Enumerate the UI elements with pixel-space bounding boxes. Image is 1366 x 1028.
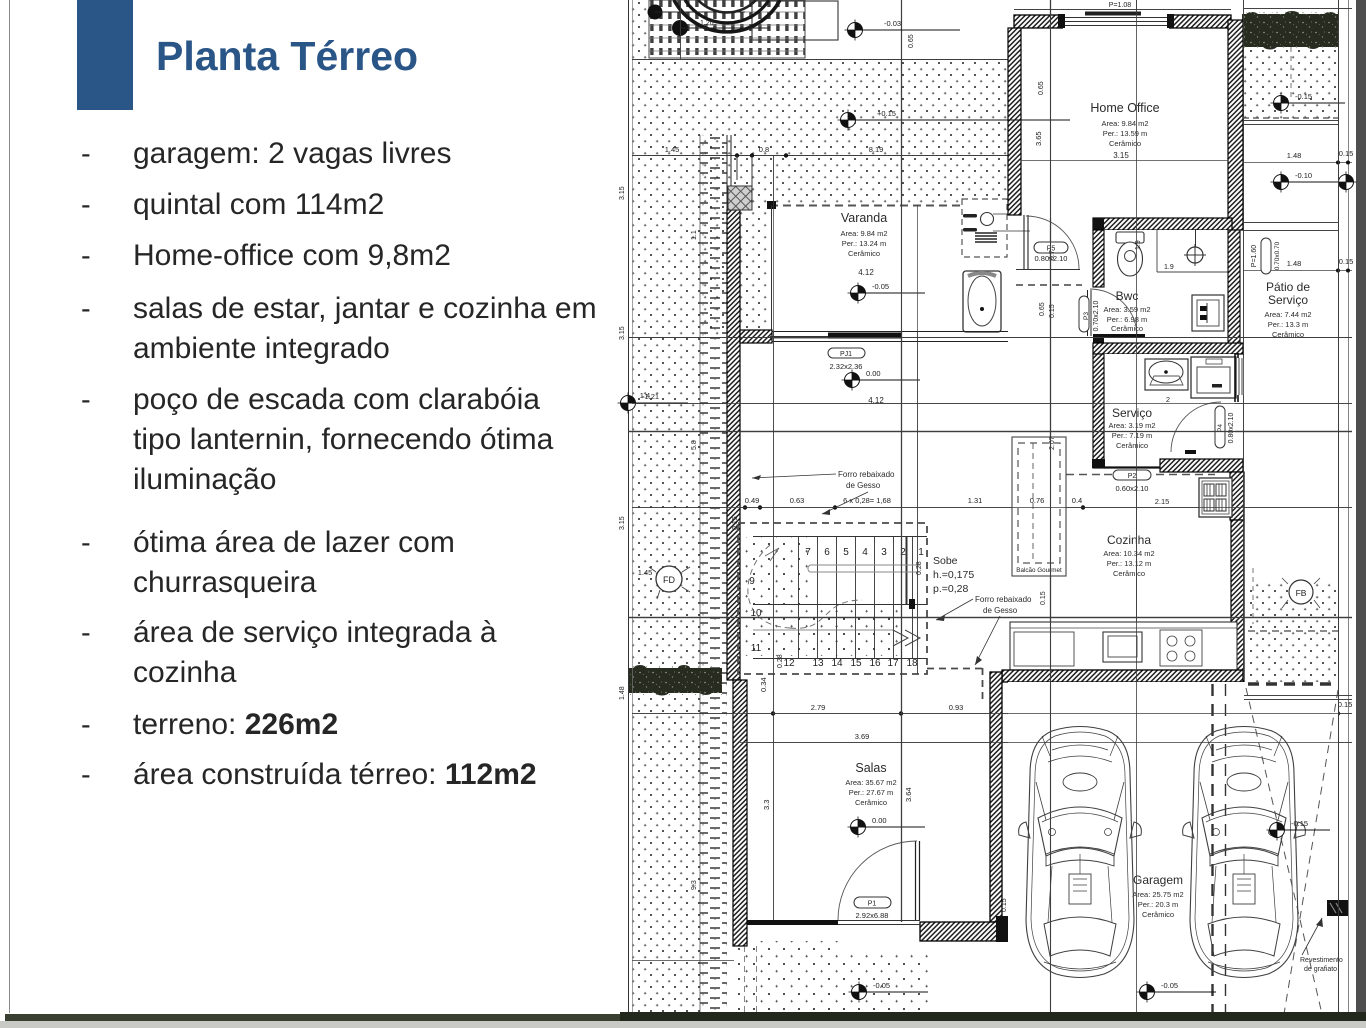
svg-text:2.79: 2.79 bbox=[811, 703, 826, 712]
svg-text:4.12: 4.12 bbox=[858, 268, 874, 277]
svg-text:1.9: 1.9 bbox=[1164, 264, 1174, 271]
svg-text:2: 2 bbox=[1166, 395, 1170, 404]
svg-text:1.20: 1.20 bbox=[700, 20, 714, 27]
svg-text:2.15: 2.15 bbox=[1155, 497, 1170, 506]
svg-text:Varanda: Varanda bbox=[841, 211, 887, 225]
svg-text:P=1.60: P=1.60 bbox=[1251, 245, 1258, 267]
svg-text:Serviço: Serviço bbox=[1268, 293, 1308, 307]
svg-text:9: 9 bbox=[749, 576, 755, 587]
svg-text:15: 15 bbox=[850, 658, 862, 669]
svg-text:Area: 7.44 m2: Area: 7.44 m2 bbox=[1264, 310, 1311, 319]
svg-text:0.65: 0.65 bbox=[908, 34, 915, 48]
svg-text:FB: FB bbox=[1296, 588, 1307, 598]
svg-text:0.49: 0.49 bbox=[745, 496, 760, 505]
svg-text:3.15: 3.15 bbox=[619, 516, 626, 530]
svg-text:0.15: 0.15 bbox=[1040, 591, 1047, 605]
svg-text:PJ1: PJ1 bbox=[840, 351, 852, 358]
svg-text:0.4: 0.4 bbox=[1072, 496, 1082, 505]
svg-text:Cerâmico: Cerâmico bbox=[1111, 324, 1143, 333]
svg-text:3.65: 3.65 bbox=[1034, 131, 1043, 146]
svg-text:6: 6 bbox=[824, 547, 830, 558]
svg-text:FD: FD bbox=[663, 575, 675, 585]
svg-text:-0.15: -0.15 bbox=[1291, 819, 1308, 828]
svg-text:Serviço: Serviço bbox=[1112, 406, 1152, 420]
svg-text:-0.10: -0.10 bbox=[1295, 171, 1312, 180]
svg-text:Cozinha: Cozinha bbox=[1107, 533, 1151, 547]
svg-text:5: 5 bbox=[843, 547, 849, 558]
svg-text:-1.21: -1.21 bbox=[642, 392, 659, 401]
svg-text:-0.05: -0.05 bbox=[873, 981, 890, 990]
svg-text:Cerâmico: Cerâmico bbox=[848, 249, 880, 258]
svg-text:-0.05: -0.05 bbox=[1161, 981, 1178, 990]
svg-text:de Gesso: de Gesso bbox=[983, 606, 1018, 615]
svg-text:Forro rebaixado: Forro rebaixado bbox=[975, 595, 1032, 604]
svg-text:6 x 0,28= 1,68: 6 x 0,28= 1,68 bbox=[843, 496, 891, 505]
svg-text:0.15: 0.15 bbox=[1339, 149, 1354, 158]
svg-text:Balcão Gourmet: Balcão Gourmet bbox=[1016, 567, 1062, 574]
svg-text:16: 16 bbox=[869, 658, 881, 669]
svg-text:Area: 25.75 m2: Area: 25.75 m2 bbox=[1132, 890, 1183, 899]
svg-text:-0.15: -0.15 bbox=[1295, 92, 1312, 101]
svg-text:Per.: 13.12 m: Per.: 13.12 m bbox=[1107, 559, 1152, 568]
svg-text:0.70x2.10: 0.70x2.10 bbox=[1093, 301, 1100, 332]
svg-text:0.34: 0.34 bbox=[759, 677, 768, 692]
svg-text:0.80x2.10: 0.80x2.10 bbox=[1228, 413, 1235, 444]
svg-text:0.93: 0.93 bbox=[949, 703, 964, 712]
svg-text:5.8: 5.8 bbox=[691, 440, 698, 450]
svg-text:14: 14 bbox=[831, 658, 843, 669]
svg-text:Per.: 13.59 m: Per.: 13.59 m bbox=[1103, 129, 1148, 138]
svg-text:Revestimento: Revestimento bbox=[1300, 957, 1343, 964]
svg-text:3.64: 3.64 bbox=[904, 787, 913, 802]
svg-text:0.28: 0.28 bbox=[777, 654, 784, 668]
svg-text:1: 1 bbox=[918, 547, 924, 558]
svg-text:Area: 35.67 m2: Area: 35.67 m2 bbox=[845, 778, 896, 787]
svg-text:P1: P1 bbox=[868, 901, 877, 908]
svg-text:Area: 3.59 m2: Area: 3.59 m2 bbox=[1103, 305, 1150, 314]
svg-text:p.=0,28: p.=0,28 bbox=[933, 583, 968, 595]
svg-text:-0.05: -0.05 bbox=[872, 282, 889, 291]
svg-text:2.92x6.88: 2.92x6.88 bbox=[856, 911, 889, 920]
svg-text:Area: 10.34 m2: Area: 10.34 m2 bbox=[1103, 549, 1154, 558]
svg-text:17: 17 bbox=[887, 658, 899, 669]
svg-text:0.65: 0.65 bbox=[1039, 302, 1046, 316]
svg-text:Bwc: Bwc bbox=[1116, 289, 1139, 303]
svg-text:P2: P2 bbox=[1128, 473, 1137, 480]
svg-text:Cerâmico: Cerâmico bbox=[1116, 441, 1148, 450]
svg-text:h.=0,175: h.=0,175 bbox=[933, 569, 974, 581]
svg-text:-0.03: -0.03 bbox=[884, 19, 901, 28]
svg-text:Cerâmico: Cerâmico bbox=[1142, 910, 1174, 919]
svg-text:9.3: 9.3 bbox=[691, 880, 698, 890]
svg-text:12: 12 bbox=[783, 658, 795, 669]
svg-text:Cerâmico: Cerâmico bbox=[855, 798, 887, 807]
svg-text:Pátio de: Pátio de bbox=[1266, 280, 1310, 294]
svg-text:11: 11 bbox=[751, 643, 762, 654]
svg-text:0.00: 0.00 bbox=[872, 816, 887, 825]
svg-text:Cerâmico: Cerâmico bbox=[1113, 569, 1145, 578]
svg-text:Per.: 6.98 m: Per.: 6.98 m bbox=[1107, 315, 1147, 324]
svg-text:3.3: 3.3 bbox=[762, 800, 771, 810]
svg-text:3.15: 3.15 bbox=[619, 326, 626, 340]
svg-text:3.15: 3.15 bbox=[1113, 151, 1129, 160]
svg-text:0.60x2.10: 0.60x2.10 bbox=[1116, 484, 1149, 493]
svg-text:7: 7 bbox=[805, 547, 811, 558]
svg-text:0.15: 0.15 bbox=[1338, 700, 1353, 709]
svg-text:Sobe: Sobe bbox=[933, 555, 958, 567]
svg-text:0.15: 0.15 bbox=[732, 516, 739, 530]
svg-text:Per.: 20.3 m: Per.: 20.3 m bbox=[1138, 900, 1178, 909]
svg-text:de grafiato: de grafiato bbox=[1304, 966, 1337, 973]
svg-text:P=1.08: P=1.08 bbox=[1109, 2, 1131, 9]
svg-text:Area: 9.84 m2: Area: 9.84 m2 bbox=[1101, 119, 1148, 128]
svg-text:Home Office: Home Office bbox=[1090, 101, 1159, 115]
svg-text:13: 13 bbox=[812, 658, 824, 669]
svg-text:4: 4 bbox=[862, 547, 868, 558]
svg-text:1.48: 1.48 bbox=[1287, 259, 1302, 268]
svg-text:18: 18 bbox=[906, 658, 918, 669]
svg-text:Area: 9.84 m2: Area: 9.84 m2 bbox=[840, 229, 887, 238]
svg-text:0.65: 0.65 bbox=[1038, 81, 1045, 95]
svg-text:3: 3 bbox=[881, 547, 887, 558]
svg-text:1.1: 1.1 bbox=[691, 230, 698, 240]
svg-text:3.69: 3.69 bbox=[855, 732, 870, 741]
svg-text:P4: P4 bbox=[1217, 424, 1224, 432]
svg-text:Per.: 13.3 m: Per.: 13.3 m bbox=[1268, 320, 1308, 329]
svg-text:0.63: 0.63 bbox=[790, 496, 805, 505]
svg-text:0.8: 0.8 bbox=[759, 145, 769, 154]
svg-text:1.9: 1.9 bbox=[1135, 240, 1142, 250]
svg-text:1.48: 1.48 bbox=[1287, 151, 1302, 160]
svg-text:Forro rebaixado: Forro rebaixado bbox=[838, 470, 895, 479]
svg-text:1.45: 1.45 bbox=[638, 568, 653, 577]
svg-text:2.32x2.36: 2.32x2.36 bbox=[830, 362, 863, 371]
svg-text:0.15: 0.15 bbox=[1339, 257, 1354, 266]
svg-text:0.00: 0.00 bbox=[866, 369, 881, 378]
svg-text:de Gesso: de Gesso bbox=[846, 481, 881, 490]
svg-text:0.70x0.70: 0.70x0.70 bbox=[1274, 241, 1281, 270]
svg-text:1.31: 1.31 bbox=[968, 496, 983, 505]
svg-text:Salas: Salas bbox=[855, 761, 886, 775]
svg-text:Garagem: Garagem bbox=[1133, 873, 1183, 887]
svg-text:3.15: 3.15 bbox=[619, 186, 626, 200]
svg-text:Per.: 13.24 m: Per.: 13.24 m bbox=[842, 239, 887, 248]
svg-text:1.45: 1.45 bbox=[665, 145, 680, 154]
svg-text:0.28: 0.28 bbox=[916, 561, 923, 575]
svg-text:1.48: 1.48 bbox=[619, 686, 626, 700]
svg-text:Per.: 27.67 m: Per.: 27.67 m bbox=[849, 788, 894, 797]
svg-text:P3: P3 bbox=[1083, 312, 1090, 320]
svg-text:+0.15: +0.15 bbox=[877, 109, 896, 118]
svg-text:Per.: 7.19 m: Per.: 7.19 m bbox=[1112, 431, 1152, 440]
svg-text:8.19: 8.19 bbox=[869, 145, 884, 154]
svg-text:0.76: 0.76 bbox=[1030, 496, 1045, 505]
svg-text:0.15: 0.15 bbox=[1001, 898, 1008, 912]
svg-text:Area: 3.19 m2: Area: 3.19 m2 bbox=[1108, 421, 1155, 430]
